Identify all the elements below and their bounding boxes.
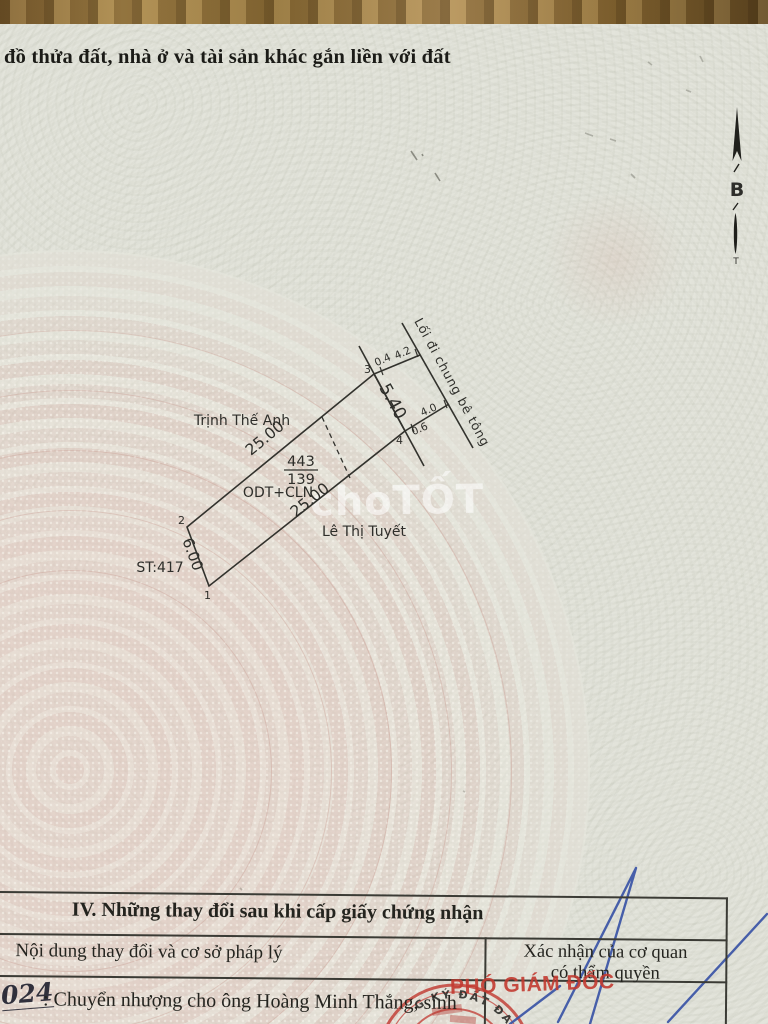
table-right-border xyxy=(725,897,728,1024)
section-iv-heading: IV. Những thay đổi sau khi cấp giấy chứn… xyxy=(72,899,484,926)
section-iv-table: IV. Những thay đổi sau khi cấp giấy chứn… xyxy=(0,0,768,1024)
column-header-left: Nội dung thay đổi và cơ sở pháp lý xyxy=(15,940,282,964)
transfer-entry-text: : Chuyển nhượng cho ông Hoàng Minh Thắng… xyxy=(43,988,457,1015)
column-header-right-line1: Xác nhận của cơ quan xyxy=(486,941,724,964)
scanned-land-certificate-page: đồ thửa đất, nhà ở và tài sản khác gắn l… xyxy=(0,0,768,1024)
